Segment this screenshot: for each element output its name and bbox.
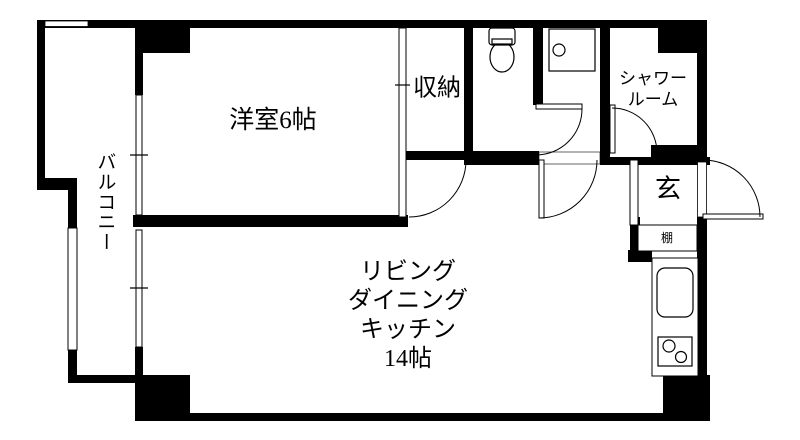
wall-corner-block-topright — [658, 20, 703, 53]
toilet-door-leaf — [536, 104, 582, 109]
stove-burner-2-icon — [676, 352, 687, 363]
entrance-label: 玄 — [655, 173, 681, 204]
wall-storage-toilet — [464, 20, 473, 165]
toilet-door-arc — [536, 109, 582, 155]
balcony-label: バルコニー — [93, 152, 116, 252]
ldk-label-line2: ダイニング — [348, 287, 468, 316]
wall-toilet-bottom — [464, 151, 539, 165]
wall-right-upper — [697, 20, 707, 162]
wall-window-seg-lower — [135, 347, 143, 375]
shower-room-label-line2: ルーム — [619, 89, 687, 110]
stove-icon — [658, 337, 692, 366]
wall-shower-notch — [651, 145, 703, 165]
washbasin-faucet-icon — [553, 44, 565, 56]
kitchen-sink-icon — [657, 268, 693, 317]
entrance-doorway — [698, 162, 707, 217]
shower-door-leaf — [610, 105, 615, 153]
entrance-door-arc — [703, 160, 760, 217]
top-window — [45, 21, 88, 27]
wall-block-bottomleft — [135, 375, 190, 421]
shower-room-label-line1: シャワー — [619, 68, 687, 89]
wall-balcony-left-upper — [68, 190, 77, 228]
ldk-label-line1: リビング — [348, 258, 468, 287]
storage-label: 収納 — [413, 75, 461, 104]
shower-room-label: シャワー ルーム — [619, 68, 687, 110]
wall-kitchen-top-chunk — [628, 250, 652, 262]
washroom-door-leaf — [539, 160, 544, 218]
wall-top-main — [190, 20, 703, 28]
washroom-door-arc — [539, 160, 597, 218]
wall-toilet-sink-stub — [533, 20, 543, 105]
balcony-railing — [68, 228, 77, 350]
wall-sink-shower — [600, 20, 610, 165]
wall-window-seg-upper — [135, 53, 143, 95]
entrance-door-leaf — [703, 214, 763, 219]
wall-left — [37, 20, 45, 190]
ldk-label-line4: 14帖 — [348, 345, 468, 374]
wall-left-step — [37, 178, 77, 190]
wall-storage-bottom — [403, 151, 472, 160]
western-room-label: 洋室6帖 — [229, 106, 317, 136]
floorplan-canvas — [0, 0, 800, 440]
storage-partition — [399, 28, 406, 217]
entrance-step-edge — [630, 160, 638, 225]
stove-burner-1-icon — [663, 340, 675, 352]
wall-block-bottomright — [663, 375, 710, 421]
wall-balcony-bottom — [68, 375, 135, 383]
toilet-lid-icon — [492, 39, 512, 44]
wall-westernroom-bottom — [133, 215, 408, 227]
shelf-label: 棚 — [661, 231, 673, 245]
floorplan: 洋室6帖 バルコニー 収納 シャワー ルーム 玄 棚 リビング ダイニング キッ… — [0, 0, 800, 440]
ldk-label-line3: キッチン — [348, 316, 468, 345]
wall-corner-block-topleft — [135, 20, 190, 53]
wall-bottom — [190, 413, 663, 421]
toilet-bowl-icon — [490, 42, 514, 72]
westernroom-door-arc — [409, 160, 466, 217]
ldk-label: リビング ダイニング キッチン 14帖 — [348, 258, 468, 374]
shower-door-arc — [612, 108, 657, 153]
